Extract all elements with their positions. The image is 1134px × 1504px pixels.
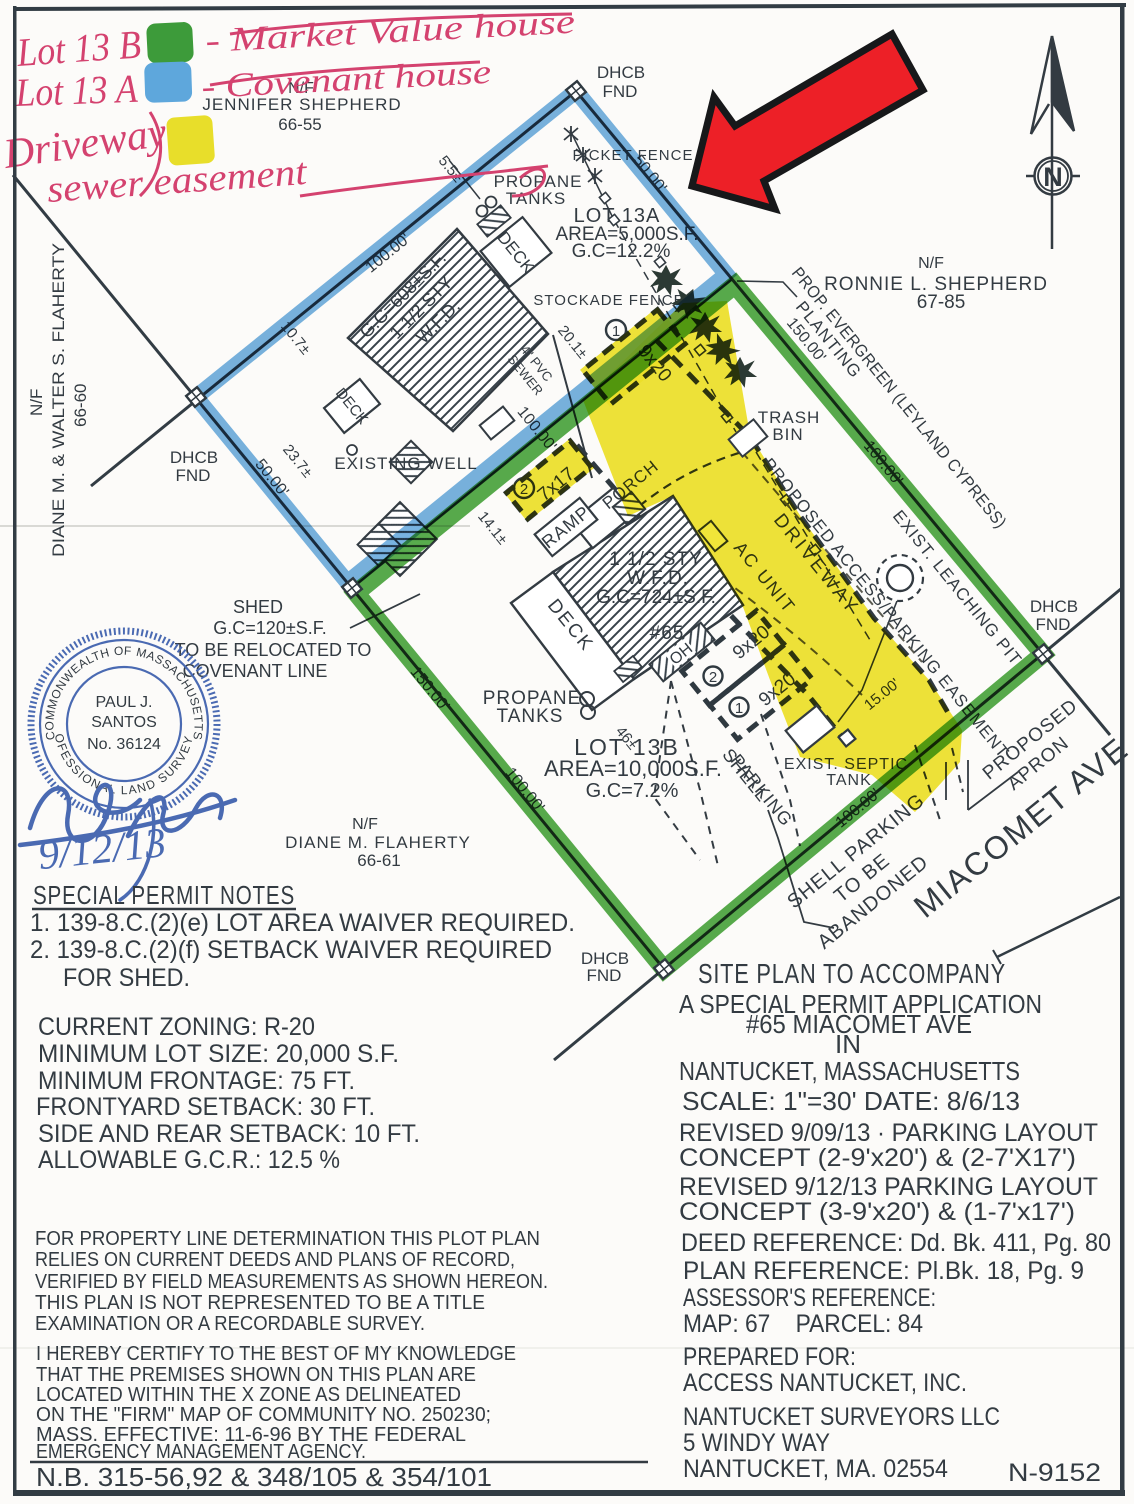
svg-text:G.C=7.2%: G.C=7.2% <box>586 780 679 802</box>
svg-text:TANKS: TANKS <box>497 706 564 727</box>
svg-text:REVISED 9/09/13 · PARKING LAYO: REVISED 9/09/13 · PARKING LAYOUT <box>679 1119 1098 1147</box>
svg-text:MINIMUM FRONTAGE: 75 FT.: MINIMUM FRONTAGE: 75 FT. <box>38 1067 355 1095</box>
svg-text:IN: IN <box>835 1029 861 1059</box>
svg-text:I HEREBY CERTIFY TO THE BEST O: I HEREBY CERTIFY TO THE BEST OF MY KNOWL… <box>36 1343 516 1365</box>
svg-text:EMERGENCY MANAGEMENT AGENCY.: EMERGENCY MANAGEMENT AGENCY. <box>36 1441 366 1463</box>
svg-text:VERIFIED BY FIELD MEASUREMENTS: VERIFIED BY FIELD MEASUREMENTS AS SHOWN … <box>35 1271 548 1293</box>
svg-text:ACCESS NANTUCKET, INC.: ACCESS NANTUCKET, INC. <box>683 1369 967 1397</box>
svg-text:G.C=12.2%: G.C=12.2% <box>572 241 671 262</box>
svg-text:DIANE M. FLAHERTY: DIANE M. FLAHERTY <box>285 833 471 852</box>
svg-text:66-55: 66-55 <box>278 115 321 134</box>
svg-text:67-85: 67-85 <box>917 292 966 313</box>
svg-text:REVISED 9/12/13 PARKING LAYOU: REVISED 9/12/13 PARKING LAYOUT <box>679 1173 1098 1201</box>
svg-text:MINIMUM LOT SIZE: 20,000 S.F.: MINIMUM LOT SIZE: 20,000 S.F. <box>38 1040 399 1068</box>
svg-text:FOR PROPERTY LINE DETERMINATIO: FOR PROPERTY LINE DETERMINATION THIS PLO… <box>35 1228 540 1250</box>
svg-text:FND: FND <box>1036 615 1071 634</box>
svg-text:AREA=10,000S.F.: AREA=10,000S.F. <box>544 756 722 781</box>
svg-text:CURRENT ZONING: R-20: CURRENT ZONING: R-20 <box>38 1013 315 1041</box>
svg-text:1: 1 <box>735 700 743 717</box>
svg-text:N-9152: N-9152 <box>1008 1459 1101 1487</box>
svg-text:ON THE "FIRM" MAP OF COMMUNITY: ON THE "FIRM" MAP OF COMMUNITY NO. 25023… <box>36 1404 491 1426</box>
svg-text:DHCB: DHCB <box>170 448 218 467</box>
svg-text:W.F.D.: W.F.D. <box>627 568 689 589</box>
svg-text:FND: FND <box>603 82 638 101</box>
svg-text:N/F: N/F <box>27 389 46 416</box>
svg-text:SIDE AND REAR SETBACK: 10 FT.: SIDE AND REAR SETBACK: 10 FT. <box>38 1120 420 1148</box>
svg-text:1. 139-8.C.(2)(e) LOT AREA WAI: 1. 139-8.C.(2)(e) LOT AREA WAIVER REQUIR… <box>30 909 575 937</box>
svg-text:1: 1 <box>612 323 620 340</box>
svg-text:NANTUCKET SURVEYORS LLC: NANTUCKET SURVEYORS LLC <box>683 1403 1000 1431</box>
svg-text:ALLOWABLE G.C.R.: 12.5 %: ALLOWABLE G.C.R.: 12.5 % <box>38 1146 340 1174</box>
svg-text:TANK: TANK <box>826 772 871 789</box>
svg-text:RELIES ON CURRENT DEEDS AND PL: RELIES ON CURRENT DEEDS AND PLANS OF REC… <box>35 1249 515 1271</box>
svg-text:DIANE M. & WALTER S. FLAHERTY: DIANE M. & WALTER S. FLAHERTY <box>49 243 68 557</box>
svg-text:G.C=120±S.F.: G.C=120±S.F. <box>213 618 326 638</box>
svg-text:2: 2 <box>709 669 717 686</box>
svg-text:SPECIAL PERMIT NOTES: SPECIAL PERMIT NOTES <box>33 880 295 910</box>
svg-text:PREPARED FOR:: PREPARED FOR: <box>683 1343 856 1371</box>
svg-text:TANKS: TANKS <box>506 189 566 208</box>
svg-text:No. 36124: No. 36124 <box>87 736 161 753</box>
svg-text:N.B. 315-56,92 & 348/105 & 354: N.B. 315-56,92 & 348/105 & 354/101 <box>36 1462 492 1492</box>
svg-text:FRONTYARD SETBACK: 30 FT.: FRONTYARD SETBACK: 30 FT. <box>36 1093 375 1121</box>
svg-text:FND: FND <box>587 966 622 985</box>
svg-text:66-60: 66-60 <box>71 384 90 427</box>
svg-text:EXISTING WELL: EXISTING WELL <box>334 454 477 473</box>
svg-text:1 1/2 STY: 1 1/2 STY <box>609 549 703 570</box>
svg-text:66-61: 66-61 <box>357 851 400 870</box>
svg-text:SANTOS: SANTOS <box>91 714 157 731</box>
svg-text:2. 139-8.C.(2)(f) SETBACK WAIV: 2. 139-8.C.(2)(f) SETBACK WAIVER REQUIRE… <box>30 936 552 964</box>
svg-text:5 WINDY WAY: 5 WINDY WAY <box>683 1429 830 1457</box>
svg-text:SCALE: 1"=30' DATE: 8/6/13: SCALE: 1"=30' DATE: 8/6/13 <box>682 1086 1020 1116</box>
svg-text:G.C=724±S.F.: G.C=724±S.F. <box>596 587 716 608</box>
svg-text:N: N <box>1043 162 1063 192</box>
svg-text:PLAN REFERENCE: Pl.Bk. 18, Pg: PLAN REFERENCE: Pl.Bk. 18, Pg. 9 <box>683 1257 1084 1285</box>
svg-text:THIS PLAN IS NOT REPRESENTED T: THIS PLAN IS NOT REPRESENTED TO BE A TIT… <box>35 1292 485 1314</box>
svg-text:BIN: BIN <box>772 425 803 444</box>
svg-text:N/F: N/F <box>352 816 378 833</box>
svg-text:STOCKADE FENCE: STOCKADE FENCE <box>533 292 684 309</box>
svg-text:SITE PLAN TO ACCOMPANY: SITE PLAN TO ACCOMPANY <box>698 958 1006 989</box>
svg-text:CONCEPT (2-9'x20') & (2-7'X17': CONCEPT (2-9'x20') & (2-7'X17') <box>679 1144 1076 1172</box>
svg-text:NANTUCKET, MASSACHUSETTS: NANTUCKET, MASSACHUSETTS <box>679 1056 1020 1086</box>
svg-text:DHCB: DHCB <box>597 63 645 82</box>
svg-text:MAP: 67 PARCEL: 84: MAP: 67 PARCEL: 84 <box>683 1310 923 1338</box>
svg-text:NANTUCKET, MA. 02554: NANTUCKET, MA. 02554 <box>683 1455 948 1483</box>
svg-text:DEED REFERENCE: Dd. Bk. 411, P: DEED REFERENCE: Dd. Bk. 411, Pg. 80 <box>681 1229 1111 1257</box>
svg-text:FOR SHED.: FOR SHED. <box>63 964 190 992</box>
svg-text:N/F: N/F <box>918 255 944 272</box>
svg-text:EXAMINATION OR A RECORDABLE SU: EXAMINATION OR A RECORDABLE SURVEY. <box>35 1313 425 1335</box>
svg-text:THAT THE PREMISES SHOWN ON THI: THAT THE PREMISES SHOWN ON THIS PLAN ARE <box>36 1364 476 1386</box>
svg-text:TO BE RELOCATED TO: TO BE RELOCATED TO <box>175 640 372 660</box>
svg-text:DHCB: DHCB <box>1030 597 1078 616</box>
svg-text:Lot 13 A: Lot 13 A <box>14 66 139 115</box>
svg-text:ASSESSOR'S REFERENCE:: ASSESSOR'S REFERENCE: <box>683 1284 936 1312</box>
svg-text:FND: FND <box>176 466 211 485</box>
svg-text:PAUL J.: PAUL J. <box>96 694 153 711</box>
svg-text:CONCEPT (3-9'x20') & (1-7'x17': CONCEPT (3-9'x20') & (1-7'x17') <box>679 1198 1075 1226</box>
svg-text:SHED: SHED <box>233 597 283 617</box>
svg-text:LOCATED WITHIN THE X ZONE AS: LOCATED WITHIN THE X ZONE AS DELINEATED <box>36 1384 461 1406</box>
